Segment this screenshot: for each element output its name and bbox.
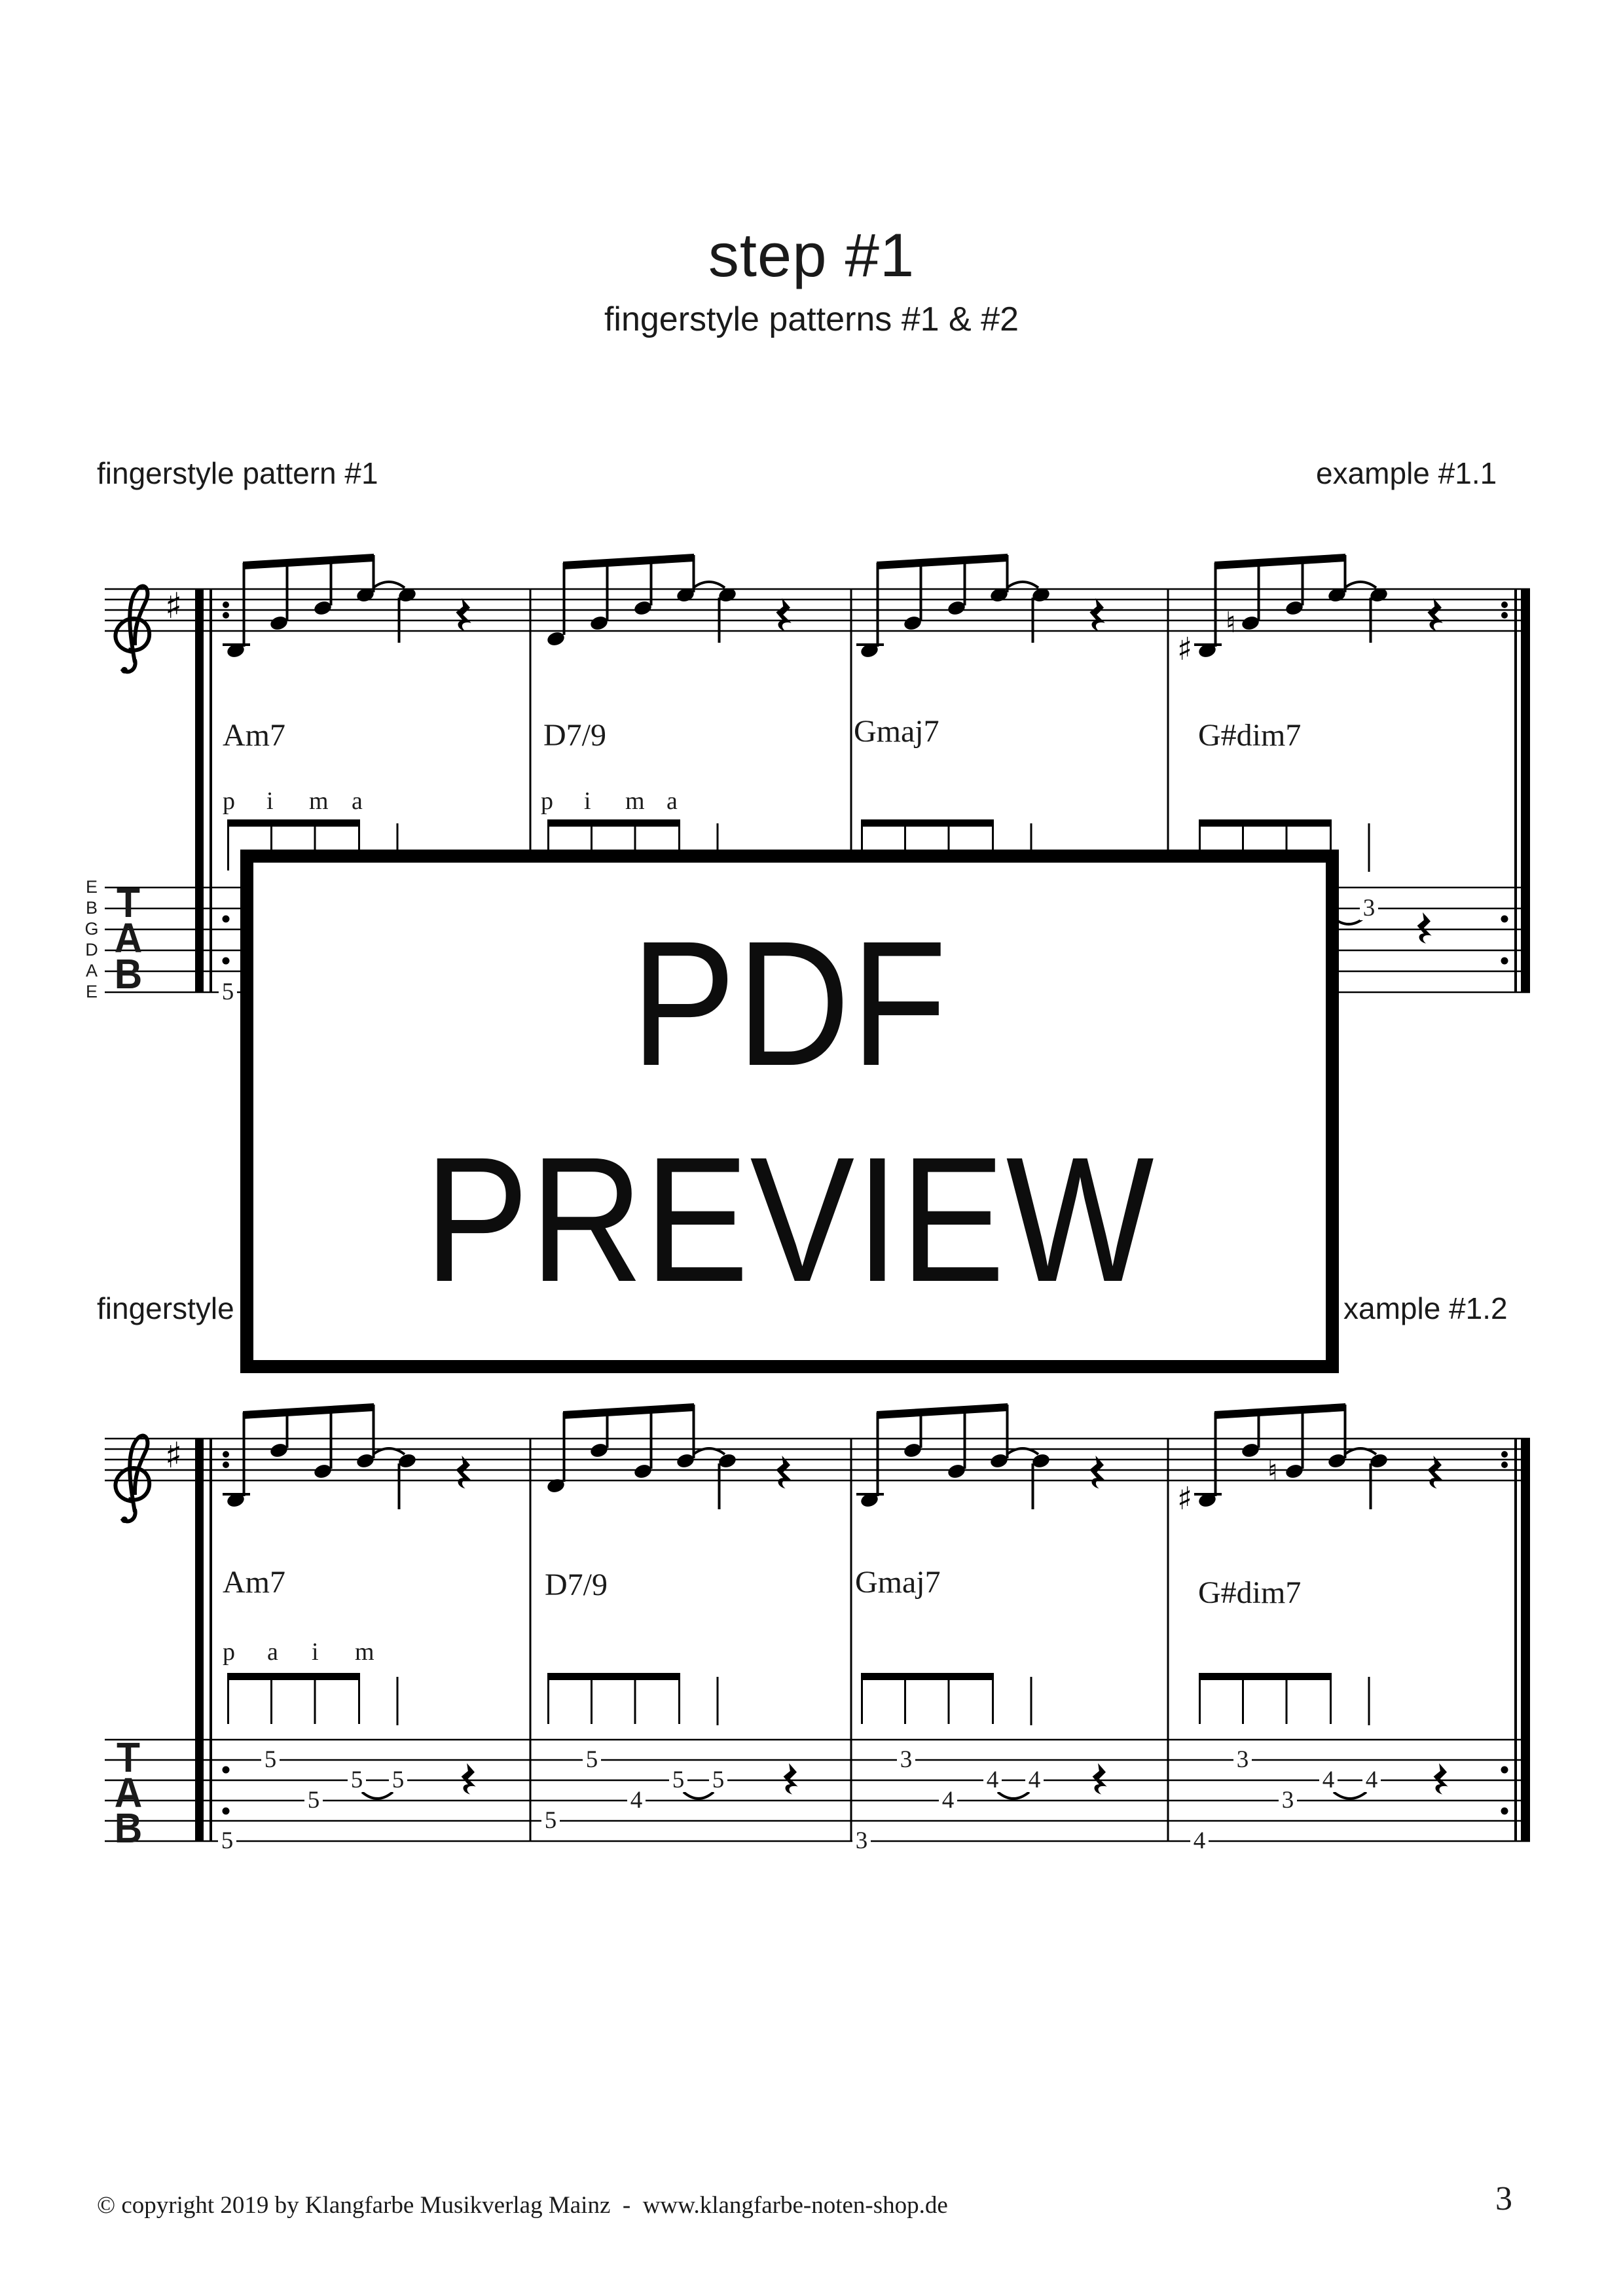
tab-fret-number: 5 <box>304 1788 323 1812</box>
tab-fret-number: 4 <box>627 1788 646 1812</box>
tab-fret-number: 4 <box>1190 1829 1209 1853</box>
tab-fret-number: 3 <box>852 1829 871 1853</box>
fingering-letter: m <box>625 787 645 816</box>
tab-fret-number: 5 <box>219 980 237 1004</box>
string-label: G <box>82 920 101 938</box>
fingering-letter: p <box>223 1638 235 1666</box>
tab-fret-number: 4 <box>1319 1768 1338 1792</box>
pdf-preview-page: { "header": { "title": "step #1", "subti… <box>0 0 1623 2296</box>
end-repeat-barline <box>1501 589 1531 992</box>
tab-fret-number: 5 <box>261 1748 280 1772</box>
chord-symbol: G#dim7 <box>1198 1575 1301 1611</box>
chord-symbol: Gmaj7 <box>855 1564 941 1600</box>
chord-symbol: Gmaj7 <box>854 713 939 749</box>
fingering-letter: a <box>352 787 363 816</box>
page-number: 3 <box>1495 2179 1512 2218</box>
tab-letter: B <box>110 958 146 990</box>
measure-3-notes <box>856 1403 1105 1509</box>
tab-quarter-rest-icon <box>1417 912 1432 944</box>
copyright-notice: © copyright 2019 by Klangfarbe Musikverl… <box>97 2191 948 2219</box>
string-label: A <box>82 962 101 980</box>
pdf-preview-watermark-box: PDF PREVIEW <box>240 850 1339 1373</box>
tab-letter: B <box>110 1812 146 1844</box>
section2-left-label: fingerstyle <box>97 1291 234 1326</box>
chord-symbol: D7/9 <box>543 717 606 753</box>
tab-fret-number: 5 <box>669 1768 687 1792</box>
tab-fret-number: 5 <box>218 1829 236 1853</box>
fingering-letter: p <box>541 787 553 816</box>
tab-fret-number: 4 <box>1362 1768 1381 1792</box>
tab-fret-number: 3 <box>1233 1748 1252 1772</box>
tab-fret-number: 3 <box>1360 896 1378 920</box>
page-subtitle: fingerstyle patterns #1 & #2 <box>0 300 1623 339</box>
pdf-preview-line-2: PREVIEW <box>424 1111 1155 1327</box>
string-label: E <box>82 878 101 896</box>
page-title: step #1 <box>0 220 1623 291</box>
sharp-accidental-icon: ♯ <box>1177 631 1192 668</box>
tab-fret-number: 3 <box>897 1748 915 1772</box>
fingering-letter: i <box>312 1638 319 1666</box>
tab-fret-number: 5 <box>348 1768 366 1792</box>
key-signature-sharp-icon: ♯ <box>165 585 182 626</box>
sharp-accidental-icon: ♯ <box>1177 1480 1192 1517</box>
natural-accidental-icon: ♮ <box>1267 1454 1278 1488</box>
rhythm-slashes <box>227 1673 1369 1725</box>
music-system-2: ♯ ♯ ♮ <box>0 1388 1623 1872</box>
measure-2-notes <box>546 1403 792 1509</box>
fingering-letter: a <box>267 1638 278 1666</box>
chord-symbol: Am7 <box>223 717 285 753</box>
string-label: D <box>82 941 101 959</box>
fingering-letter: m <box>355 1638 374 1666</box>
natural-accidental-icon: ♮ <box>1226 606 1236 639</box>
measure-1-notes <box>223 554 471 659</box>
tab-fret-number: 5 <box>583 1748 601 1772</box>
measure-1-notes <box>223 1403 471 1509</box>
measure-3-notes <box>856 554 1105 659</box>
tab-fret-number: 5 <box>709 1768 727 1792</box>
fingering-letter: p <box>223 787 235 816</box>
tab-fret-number: 5 <box>389 1768 407 1792</box>
tab-fret-number: 3 <box>1279 1788 1297 1812</box>
fingering-letter: i <box>584 787 591 816</box>
tab-letter: A <box>110 922 146 954</box>
string-label: E <box>82 983 101 1001</box>
tab-fret-number: 4 <box>1025 1768 1044 1792</box>
section1-left-label: fingerstyle pattern #1 <box>97 456 378 491</box>
pdf-preview-line-1: PDF <box>631 895 948 1111</box>
measure-2-notes <box>546 554 792 647</box>
measure-4-notes <box>1194 1403 1443 1509</box>
tab-ties <box>362 1792 1366 1799</box>
tab-fret-number: 4 <box>939 1788 957 1812</box>
section2-right-label: xample #1.2 <box>1343 1291 1508 1326</box>
string-label: B <box>82 899 101 917</box>
key-signature-sharp-icon: ♯ <box>165 1435 182 1476</box>
fingering-letter: m <box>309 787 329 816</box>
tab-fret-number: 5 <box>541 1808 560 1833</box>
fingering-letter: a <box>666 787 678 816</box>
chord-symbol: G#dim7 <box>1198 717 1301 753</box>
section1-right-label: example #1.1 <box>1316 456 1497 491</box>
chord-symbol: Am7 <box>223 1564 285 1600</box>
chord-symbol: D7/9 <box>545 1567 608 1603</box>
fingering-letter: i <box>266 787 274 816</box>
tab-fret-number: 4 <box>983 1768 1002 1792</box>
